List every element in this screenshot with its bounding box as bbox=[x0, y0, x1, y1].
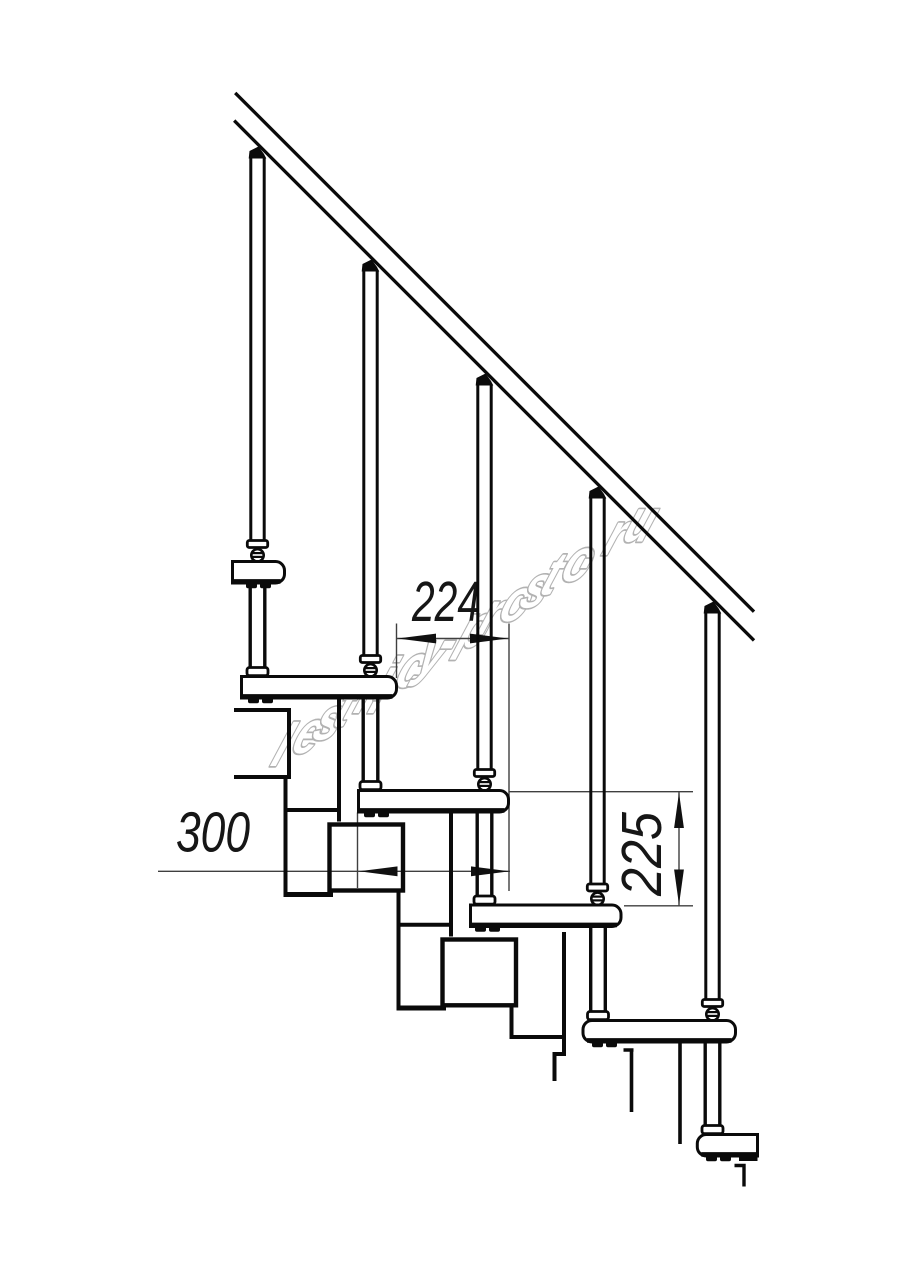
svg-text:300: 300 bbox=[176, 801, 250, 865]
svg-text:225: 225 bbox=[610, 812, 674, 897]
svg-text:224: 224 bbox=[411, 570, 480, 634]
